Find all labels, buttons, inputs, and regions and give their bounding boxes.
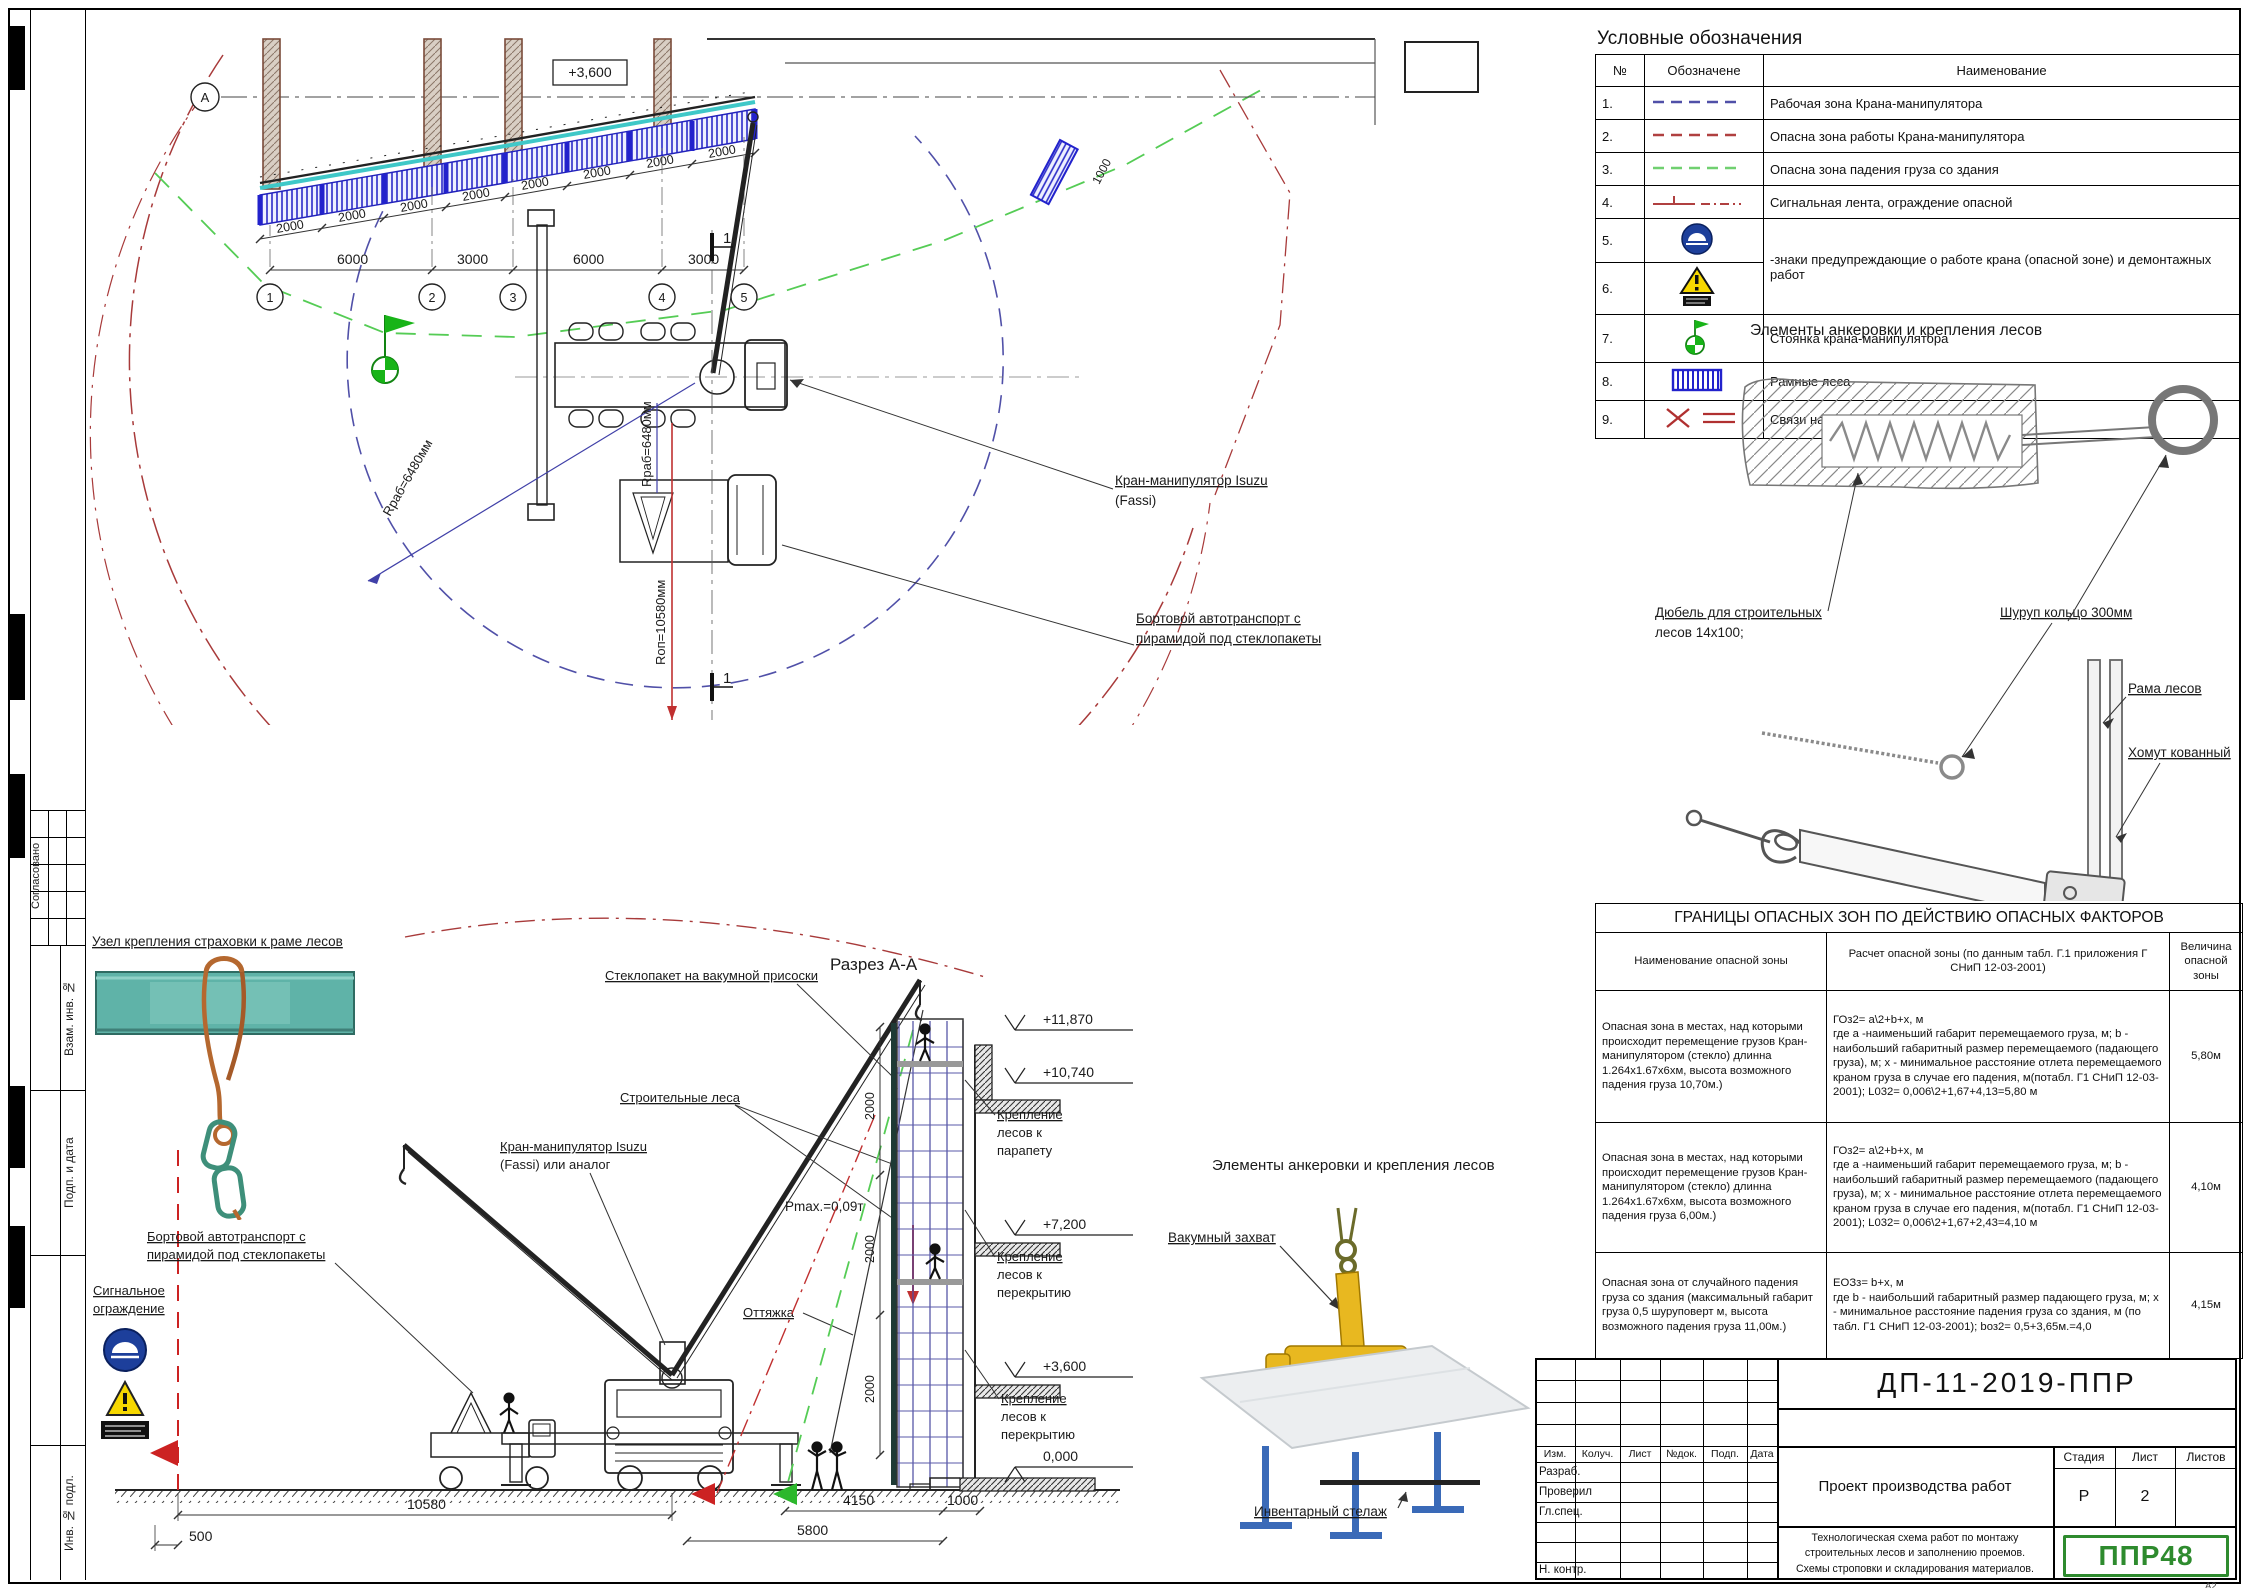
helmet-sign-icon <box>1645 219 1764 263</box>
svg-text:пирамидой под стеклопакеты: пирамидой под стеклопакеты <box>1136 631 1321 646</box>
svg-text:1: 1 <box>723 230 731 247</box>
dz-calc: ГОз2= а\2+b+х, м где а -наименьший габар… <box>1827 990 2170 1122</box>
binding-mark <box>10 774 25 858</box>
legend-col-sym: Обозначене <box>1645 55 1764 87</box>
scaffold-segment <box>1031 140 1078 204</box>
danger-zone-line-icon <box>1645 120 1764 153</box>
danger-zones-table: ГРАНИЦЫ ОПАСНЫХ ЗОН ПО ДЕЙСТВИЮ ОПАСНЫХ … <box>1595 903 2243 1359</box>
vacuum-rack-label: Инвентарный стелаж <box>1254 1504 1387 1519</box>
stamp-podp: Подп. и дата <box>62 1093 83 1253</box>
grid-bubble-a: А <box>201 90 210 105</box>
binding-mark <box>10 26 25 90</box>
vertical-dims: 2000 2000 2000 <box>863 1023 884 1459</box>
drawing-description: Технологическая схема работ по монтажу с… <box>1785 1531 2045 1577</box>
svg-text:3: 3 <box>510 291 517 305</box>
stage-value: Р <box>2053 1468 2115 1526</box>
svg-text:Rраб=6480мм: Rраб=6480мм <box>639 401 654 487</box>
drawing-sheet: Согласовано Взам. инв. № Подп. и дата Ин… <box>0 0 2245 1588</box>
rack-legs <box>1240 1432 1480 1539</box>
svg-text:перекрытию: перекрытию <box>997 1285 1071 1300</box>
svg-text:5800: 5800 <box>797 1522 828 1538</box>
svg-text:0,000: 0,000 <box>1043 1448 1078 1464</box>
scaffold-label: Строительные леса <box>620 1090 741 1105</box>
carabiner <box>213 1166 245 1217</box>
stamp-vzam: Взам. инв. № <box>62 948 83 1088</box>
stamp-inv: Инв. № подл. <box>62 1448 83 1578</box>
work-zone-arc <box>347 136 1003 688</box>
ring-screw-eye <box>1941 756 1963 778</box>
svg-text:Крепление: Крепление <box>1001 1391 1067 1406</box>
svg-text:6000: 6000 <box>573 251 604 267</box>
frame-line <box>30 8 31 1580</box>
tb-proveril: Проверил <box>1535 1482 1624 1502</box>
svg-text:1000: 1000 <box>947 1492 978 1508</box>
guy-label: Оттяжка <box>743 1305 795 1320</box>
svg-text:Rраб=6480мм: Rраб=6480мм <box>380 437 436 519</box>
legend-col-num: № <box>1596 55 1645 87</box>
legend-name: Рабочая зона Крана-манипулятора <box>1764 87 2240 120</box>
safety-node-title: Узел крепления страховки к раме лесов <box>92 934 343 949</box>
sheet-value: 2 <box>2115 1468 2175 1526</box>
svg-text:парапету: парапету <box>997 1143 1053 1158</box>
stamp-approved: Согласовано <box>30 806 47 946</box>
glass-sheet <box>1202 1346 1528 1448</box>
dz-header-val: Величина опасной зоны <box>2170 932 2243 990</box>
plan-crane-label: Кран-манипулятор Isuzu <box>1115 473 1268 488</box>
tb-col-izm: Изм. <box>1535 1446 1575 1462</box>
legend-name-signs: -знаки предупреждающие о работе крана (о… <box>1764 219 2240 315</box>
warning-sign-icon <box>1645 263 1764 315</box>
svg-text:+11,870: +11,870 <box>1043 1011 1093 1027</box>
binding-mark <box>10 1086 25 1168</box>
vacuum-title: Элементы анкеровки и крепления лесов <box>1212 1157 1495 1174</box>
section-flatbed-truck <box>431 1393 555 1489</box>
vacuum-grab-label: Вакумный захват <box>1168 1230 1276 1245</box>
svg-text:пирамидой под стеклопакеты: пирамидой под стеклопакеты <box>147 1247 325 1262</box>
tb-col-koluch: Колуч. <box>1575 1446 1620 1462</box>
svg-text:лесов 14х100;: лесов 14х100; <box>1655 625 1744 640</box>
fall-zone-line-icon <box>1645 153 1764 186</box>
clamp-label: Хомут кованный <box>2128 745 2231 760</box>
dz-val: 5,80м <box>2170 990 2243 1122</box>
title-block: Изм. Колуч. Лист №док. Подп. Дата Разраб… <box>1535 1358 2237 1580</box>
plan-view: 1000 А <box>85 25 1565 725</box>
svg-text:(Fassi) или аналог: (Fassi) или аналог <box>500 1157 611 1172</box>
scaffold-tower <box>891 1019 963 1487</box>
svg-text:Сигнальное: Сигнальное <box>93 1283 165 1298</box>
signal-tape-icon <box>1645 186 1764 219</box>
tb-razrab: Разраб. <box>1535 1462 1624 1482</box>
tb-col-list: Лист <box>1620 1446 1660 1462</box>
binding-mark <box>10 614 25 700</box>
svg-text:+10,740: +10,740 <box>1043 1064 1094 1080</box>
legend-title: Условные обозначения <box>1597 28 1802 50</box>
plan-truck-label: Бортовой автотранспорт с <box>1136 611 1301 626</box>
hook-pipe <box>1687 811 2125 901</box>
sheet-label: Лист <box>2115 1446 2175 1468</box>
dz-zone: Опасная зона в местах, над которыми прои… <box>1596 990 1827 1122</box>
svg-text:2000: 2000 <box>863 1235 877 1263</box>
dowel-label: Дюбель для строительных <box>1655 605 1822 620</box>
scaffold-pipe <box>2088 660 2100 900</box>
tb-nkontr: Н. контр. <box>1535 1560 1624 1580</box>
svg-text:2000: 2000 <box>863 1375 877 1403</box>
roof-hatch <box>1405 42 1478 92</box>
sheets-label: Листов <box>2175 1446 2237 1468</box>
ring-screw-label: Шуруп кольцо 300мм <box>2000 605 2132 620</box>
crane-parking-icon <box>372 315 415 383</box>
svg-text:Крепление: Крепление <box>997 1249 1063 1264</box>
svg-text:ограждение: ограждение <box>93 1301 165 1316</box>
tb-col-data: Дата <box>1747 1446 1777 1462</box>
plan-flatbed-truck <box>620 475 776 565</box>
svg-text:5: 5 <box>741 291 748 305</box>
glass-label: Стеклопакет на вакумной присоски <box>605 968 818 983</box>
format-label: А2 <box>2205 1581 2217 1588</box>
anchoring-sketch: Элементы анкеровки и крепления лесов Дюб… <box>1600 315 2245 901</box>
svg-text:+7,200: +7,200 <box>1043 1216 1086 1232</box>
frame-label: Рама лесов <box>2128 681 2202 696</box>
work-zone-line-icon <box>1645 87 1764 120</box>
section-crane-truck <box>400 980 925 1490</box>
dz-header-calc: Расчет опасной зоны (по данным табл. Г.1… <box>1827 932 2170 990</box>
anchoring-title: Элементы анкеровки и крепления лесов <box>1750 322 2042 339</box>
safety-node-illustration: Узел крепления страховки к раме лесов <box>88 930 360 1220</box>
legend-col-name: Наименование <box>1764 55 2240 87</box>
svg-text:4150: 4150 <box>843 1492 874 1508</box>
svg-text:10580: 10580 <box>407 1496 446 1512</box>
svg-text:лесов к: лесов к <box>997 1125 1042 1140</box>
svg-text:перекрытию: перекрытию <box>1001 1427 1075 1442</box>
svg-text:лесов к: лесов к <box>1001 1409 1046 1424</box>
svg-text:3000: 3000 <box>457 251 488 267</box>
elevation-value: +3,600 <box>568 64 611 80</box>
svg-text:6000: 6000 <box>337 251 368 267</box>
svg-text:(Fassi): (Fassi) <box>1115 493 1156 508</box>
ring <box>2152 389 2214 451</box>
tb-col-dok: №док. <box>1660 1446 1703 1462</box>
vacuum-illustration: Элементы анкеровки и крепления лесов Вак… <box>1150 1150 1580 1550</box>
svg-text:4: 4 <box>659 291 666 305</box>
svg-text:1: 1 <box>267 291 274 305</box>
safety-rope <box>206 959 242 973</box>
company-logo: ППР48 <box>2063 1535 2229 1577</box>
binding-mark <box>10 1226 25 1308</box>
pmax-label: Pmax.=0,09т <box>785 1199 864 1214</box>
svg-text:Крепление: Крепление <box>997 1107 1063 1122</box>
tb-glspec: Гл.спец. <box>1535 1502 1624 1522</box>
worker-on-truck <box>500 1394 518 1434</box>
svg-text:+3,600: +3,600 <box>1043 1358 1086 1374</box>
section-truck-label: Бортовой автотранспорт с <box>147 1229 306 1244</box>
svg-text:3000: 3000 <box>688 251 719 267</box>
doc-number: ДП-11-2019-ППР <box>1777 1358 2237 1408</box>
svg-text:2: 2 <box>429 291 436 305</box>
legend-num: 1. <box>1596 87 1645 120</box>
project-name: Проект производства работ <box>1777 1446 2053 1526</box>
section-crane-label: Кран-манипулятор Isuzu <box>500 1139 647 1154</box>
svg-text:500: 500 <box>189 1528 213 1544</box>
svg-text:лесов к: лесов к <box>997 1267 1042 1282</box>
svg-text:2000: 2000 <box>863 1092 877 1120</box>
tb-col-podp: Подп. <box>1703 1446 1747 1462</box>
plan-labels: Кран-манипулятор Isuzu (Fassi) Бортовой … <box>782 379 1321 646</box>
section-title: Разрез А-А <box>830 955 918 974</box>
scaffold-pipe <box>2110 660 2122 900</box>
stage-label: Стадия <box>2053 1446 2115 1468</box>
gripper-arm <box>1336 1272 1364 1349</box>
danger-table-title: ГРАНИЦЫ ОПАСНЫХ ЗОН ПО ДЕЙСТВИЮ ОПАСНЫХ … <box>1596 904 2243 933</box>
dz-header-zone: Наименование опасной зоны <box>1596 932 1827 990</box>
danger-zone-right <box>1215 70 1290 495</box>
